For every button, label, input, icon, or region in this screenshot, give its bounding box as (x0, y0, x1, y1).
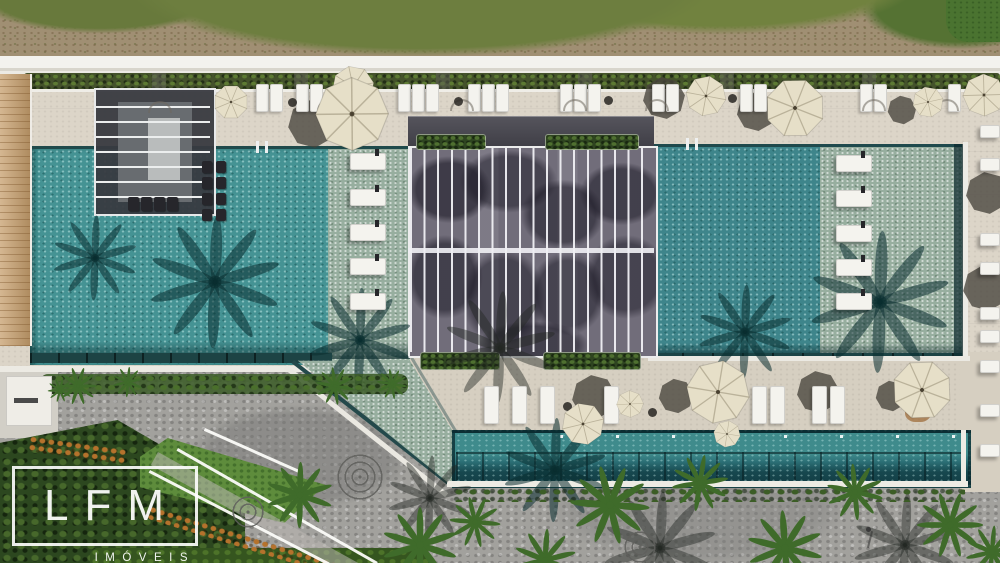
right-pool (652, 144, 962, 361)
lap-pool-railing-shadow (456, 452, 961, 480)
pavilion-cross-beam (408, 248, 654, 253)
watermark-frame: LFM (12, 466, 198, 546)
glass-skylight (94, 88, 216, 216)
lawn-field (0, 0, 1000, 60)
left-pool-sun-shelf (328, 149, 410, 365)
right-pool-side-rim (963, 142, 968, 360)
planting-strip (40, 374, 408, 394)
perimeter-hedge (24, 73, 1000, 89)
lap-pool-end-rim (961, 430, 966, 486)
timber-deck (0, 74, 32, 346)
watermark-tagline: IMÓVEIS (12, 552, 195, 563)
pavilion-planter-top-left (416, 134, 486, 150)
left-pool-rim (0, 366, 332, 372)
watermark-logo-text: LFM (30, 481, 180, 531)
left-pool (30, 146, 410, 365)
lawn-corner-patch (946, 0, 1000, 42)
pavilion-planter-top-right (545, 134, 639, 150)
pavilion-planter-bottom-left (420, 352, 500, 370)
right-pool-rim (648, 356, 970, 361)
lap-pool-edge-dots (560, 435, 960, 438)
lap-pool-hedge (452, 487, 965, 502)
right-pool-sun-shelf (820, 147, 962, 361)
shed-detail (14, 398, 38, 403)
aerial-pool-photo: LFM IMÓVEIS (0, 0, 1000, 563)
right-pool-side-edge (954, 144, 963, 358)
watermark-logo: LFM IMÓVEIS (12, 466, 198, 563)
pavilion-planter-bottom-right (543, 352, 641, 370)
skylight-frame-bars (96, 106, 210, 208)
left-pool-bottom-edge (30, 353, 332, 363)
